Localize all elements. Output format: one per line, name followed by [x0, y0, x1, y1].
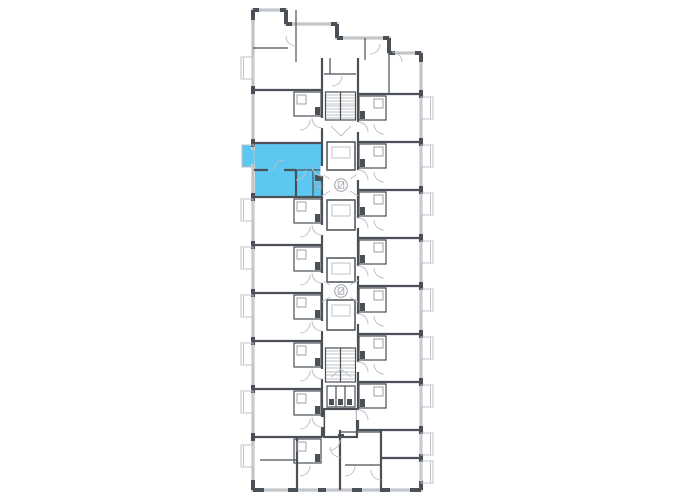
door-arc	[370, 44, 380, 54]
door-arc	[374, 316, 384, 326]
door-arc	[374, 220, 384, 230]
door-arc	[300, 371, 310, 381]
direction-arrow	[331, 126, 351, 136]
bathroom-block	[294, 343, 321, 367]
bathroom-block	[294, 391, 321, 415]
bathroom-block	[359, 240, 386, 264]
bathroom-block	[294, 295, 321, 319]
structural-piers	[253, 10, 421, 490]
bathroom-block	[359, 336, 386, 360]
door-arc	[374, 172, 384, 182]
door-arc	[330, 440, 340, 450]
door-arc	[371, 470, 381, 480]
bathroom-block	[294, 247, 321, 271]
bathroom-block	[294, 199, 321, 223]
bathroom-block	[359, 144, 386, 168]
elevator-icon	[335, 179, 348, 192]
elevator-icon	[335, 285, 348, 298]
door-arc	[332, 76, 342, 86]
bathroom-block	[359, 288, 386, 312]
floor-plan-canvas	[0, 0, 680, 500]
door-arc	[300, 419, 310, 429]
floor-plan	[0, 0, 680, 500]
door-arc	[345, 466, 355, 476]
staircase-icon	[326, 92, 356, 120]
building-outline	[253, 10, 421, 490]
door-arc	[374, 268, 384, 278]
bathroom-block	[359, 96, 386, 120]
door-arc	[374, 364, 384, 374]
door-arc	[300, 227, 310, 237]
door-arc	[300, 120, 310, 130]
bathroom-block	[294, 92, 321, 116]
door-arc	[374, 124, 384, 134]
door-arc	[300, 275, 310, 285]
vent-shaft	[327, 386, 355, 407]
door-arc	[300, 323, 310, 333]
core	[322, 58, 358, 437]
elevator-shaft	[327, 258, 355, 282]
door-arc	[300, 466, 310, 476]
door-arc	[286, 36, 296, 46]
bathroom-block	[359, 192, 386, 216]
bathroom-block	[359, 384, 386, 408]
elevator-shaft	[327, 142, 355, 170]
apartment-walls	[253, 10, 421, 490]
